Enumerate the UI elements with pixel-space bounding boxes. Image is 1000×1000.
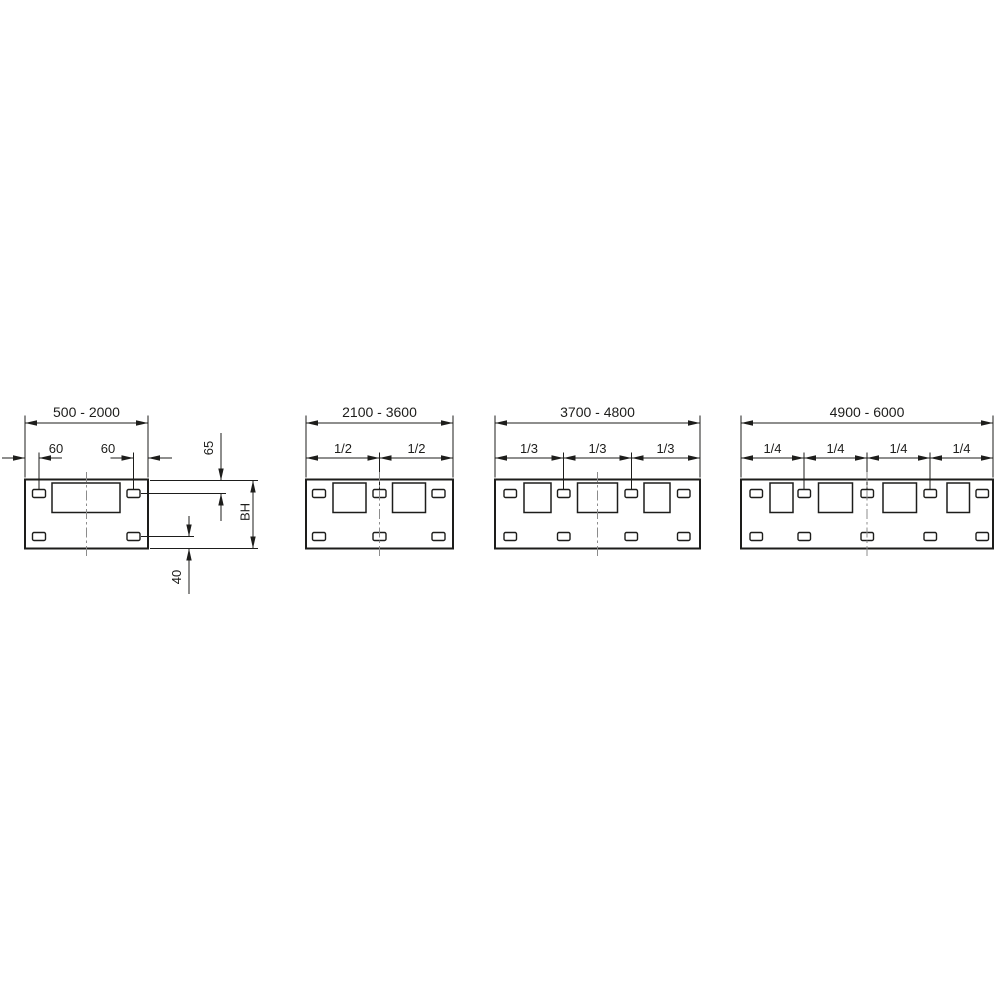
slot-top-4 [678, 490, 691, 498]
top-distance-label: 65 [201, 441, 216, 455]
slot-bottom-2 [558, 533, 571, 541]
cutout-3 [644, 483, 670, 513]
cutout-4 [947, 483, 970, 513]
cutout-3 [883, 483, 917, 513]
diagram-500-2000 [2, 416, 258, 595]
offset-label-left: 60 [49, 441, 63, 456]
third-label-2: 1/3 [588, 441, 606, 456]
slot-top-left [313, 490, 326, 498]
cutout-2 [819, 483, 853, 513]
slot-bottom-5 [976, 533, 989, 541]
slot-bottom-left [33, 533, 46, 541]
quarter-label-2: 1/4 [826, 441, 844, 456]
slot-top-1 [504, 490, 517, 498]
slot-top-2 [558, 490, 571, 498]
slot-top-2 [798, 490, 811, 498]
range-label-1: 500 - 2000 [53, 404, 120, 420]
third-label-1: 1/3 [520, 441, 538, 456]
slot-bottom-right [432, 533, 445, 541]
slot-bottom-2 [798, 533, 811, 541]
slot-top-3 [625, 490, 638, 498]
drawing-canvas: 500 - 2000 60 60 65 BH 40 2100 - 3600 1/… [0, 0, 1000, 1000]
slot-bottom-left [313, 533, 326, 541]
slot-top-5 [976, 490, 989, 498]
slot-top-left [33, 490, 46, 498]
slot-bottom-4 [924, 533, 937, 541]
quarter-label-3: 1/4 [889, 441, 907, 456]
offset-label-right: 60 [101, 441, 115, 456]
quarter-label-4: 1/4 [952, 441, 970, 456]
slot-bottom-1 [504, 533, 517, 541]
range-label-2: 2100 - 3600 [342, 404, 417, 420]
slot-top-right [432, 490, 445, 498]
extension-lines-range [25, 416, 148, 478]
slot-top-1 [750, 490, 763, 498]
centerline-layer [87, 472, 868, 557]
bottom-distance-label: 40 [169, 570, 184, 584]
cutout-1 [524, 483, 551, 513]
label-layer: 500 - 2000 60 60 65 BH 40 2100 - 3600 1/… [49, 404, 971, 584]
slot-top-4 [924, 490, 937, 498]
plate-height-label: BH [238, 503, 253, 521]
half-label-2: 1/2 [407, 441, 425, 456]
range-label-4: 4900 - 6000 [830, 404, 905, 420]
half-label-1: 1/2 [334, 441, 352, 456]
slot-bottom-4 [678, 533, 691, 541]
slot-bottom-right [127, 533, 140, 541]
slot-bottom-3 [625, 533, 638, 541]
cutout-2 [393, 483, 426, 513]
slot-top-right [127, 490, 140, 498]
cutout-1 [333, 483, 366, 513]
cutout-1 [770, 483, 793, 513]
slot-bottom-1 [750, 533, 763, 541]
technical-drawing: 500 - 2000 60 60 65 BH 40 2100 - 3600 1/… [0, 0, 1000, 1000]
range-label-3: 3700 - 4800 [560, 404, 635, 420]
third-label-3: 1/3 [656, 441, 674, 456]
quarter-label-1: 1/4 [763, 441, 781, 456]
